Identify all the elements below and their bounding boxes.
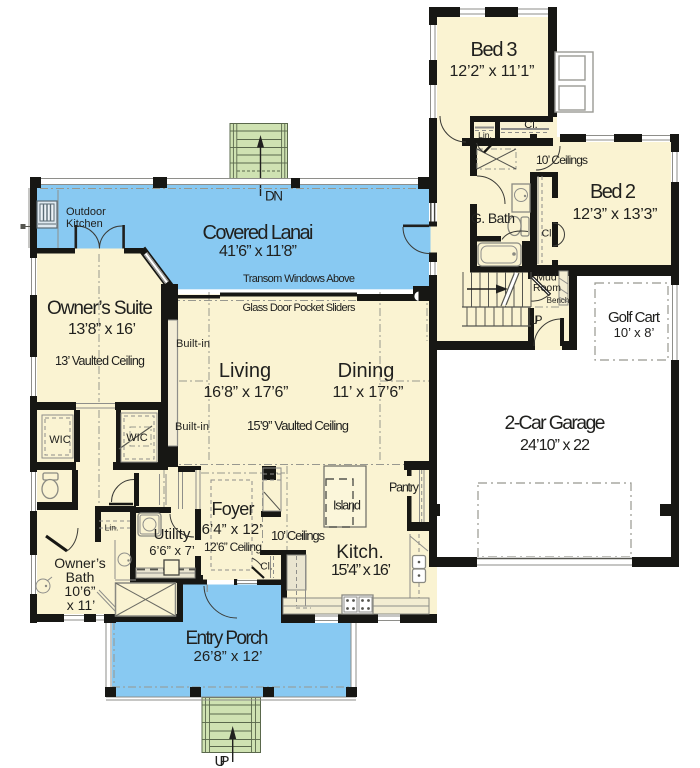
svg-text:10’ x 8’: 10’ x 8’	[614, 325, 655, 340]
svg-text:Golf Cart: Golf Cart	[608, 309, 661, 326]
svg-text:Entry Porch: Entry Porch	[186, 628, 269, 649]
svg-text:12’6” Ceiling: 12’6” Ceiling	[204, 540, 262, 554]
svg-text:26’8” x 12’: 26’8” x 12’	[194, 648, 263, 665]
svg-text:24’10” x 22: 24’10” x 22	[520, 437, 590, 454]
svg-text:Living: Living	[219, 360, 271, 382]
svg-text:41’6” x 11’8”: 41’6” x 11’8”	[219, 243, 297, 260]
svg-text:Utility: Utility	[154, 526, 191, 543]
svg-text:10’ Ceilings: 10’ Ceilings	[271, 528, 326, 543]
svg-text:x 11’: x 11’	[67, 597, 96, 613]
svg-text:Built-in: Built-in	[176, 338, 210, 350]
svg-text:Foyer: Foyer	[212, 499, 255, 519]
svg-text:15’4” x 16’: 15’4” x 16’	[331, 562, 391, 579]
svg-text:Bed 2: Bed 2	[590, 181, 636, 203]
svg-text:Glass Door Pocket Sliders: Glass Door Pocket Sliders	[243, 302, 357, 314]
svg-text:Cl.: Cl.	[542, 228, 555, 240]
svg-text:13’ Vaulted Ceiling: 13’ Vaulted Ceiling	[55, 354, 145, 368]
svg-text:Built-in: Built-in	[175, 421, 209, 433]
svg-text:Kitch.: Kitch.	[336, 542, 384, 563]
svg-text:UP: UP	[215, 753, 230, 768]
svg-text:13’8” x 16’: 13’8” x 16’	[68, 321, 136, 338]
svg-text:11’ x 17’6”: 11’ x 17’6”	[333, 384, 404, 401]
svg-text:Pantry: Pantry	[389, 481, 420, 495]
svg-text:15’9” Vaulted Ceiling: 15’9” Vaulted Ceiling	[247, 418, 349, 433]
svg-text:2-Car Garage: 2-Car Garage	[505, 412, 606, 434]
svg-text:Cl.: Cl.	[260, 562, 272, 573]
svg-text:Island: Island	[333, 499, 361, 513]
svg-text:10’ Ceilings: 10’ Ceilings	[536, 153, 588, 167]
svg-text:Bench: Bench	[547, 296, 570, 305]
svg-text:Room: Room	[533, 282, 561, 294]
svg-text:12’2” x 11’1”: 12’2” x 11’1”	[450, 63, 535, 80]
svg-text:Cl.: Cl.	[524, 119, 537, 131]
svg-text:Bed 3: Bed 3	[471, 39, 518, 61]
svg-text:12’3” x 13’3”: 12’3” x 13’3”	[573, 206, 658, 223]
svg-text:G. Bath: G. Bath	[471, 210, 515, 226]
svg-text:UP: UP	[530, 313, 543, 327]
svg-text:6’4” x 12’: 6’4” x 12’	[202, 521, 263, 538]
svg-text:Covered Lanai: Covered Lanai	[203, 222, 314, 244]
svg-text:WIC: WIC	[49, 434, 70, 446]
svg-text:Kitchen: Kitchen	[66, 218, 103, 230]
svg-text:Lin.: Lin.	[105, 523, 119, 533]
svg-text:16’8” x 17’6”: 16’8” x 17’6”	[204, 384, 289, 401]
svg-text:Dining: Dining	[338, 360, 395, 382]
svg-text:Owner’s Suite: Owner’s Suite	[47, 298, 153, 319]
svg-text:WIC: WIC	[126, 432, 147, 444]
svg-text:6’6” x 7’: 6’6” x 7’	[149, 543, 195, 558]
svg-text:DN: DN	[265, 189, 283, 204]
svg-text:Outdoor: Outdoor	[66, 206, 106, 218]
svg-text:Lin.: Lin.	[478, 130, 492, 140]
svg-text:Transom Windows Above: Transom Windows Above	[243, 273, 355, 285]
